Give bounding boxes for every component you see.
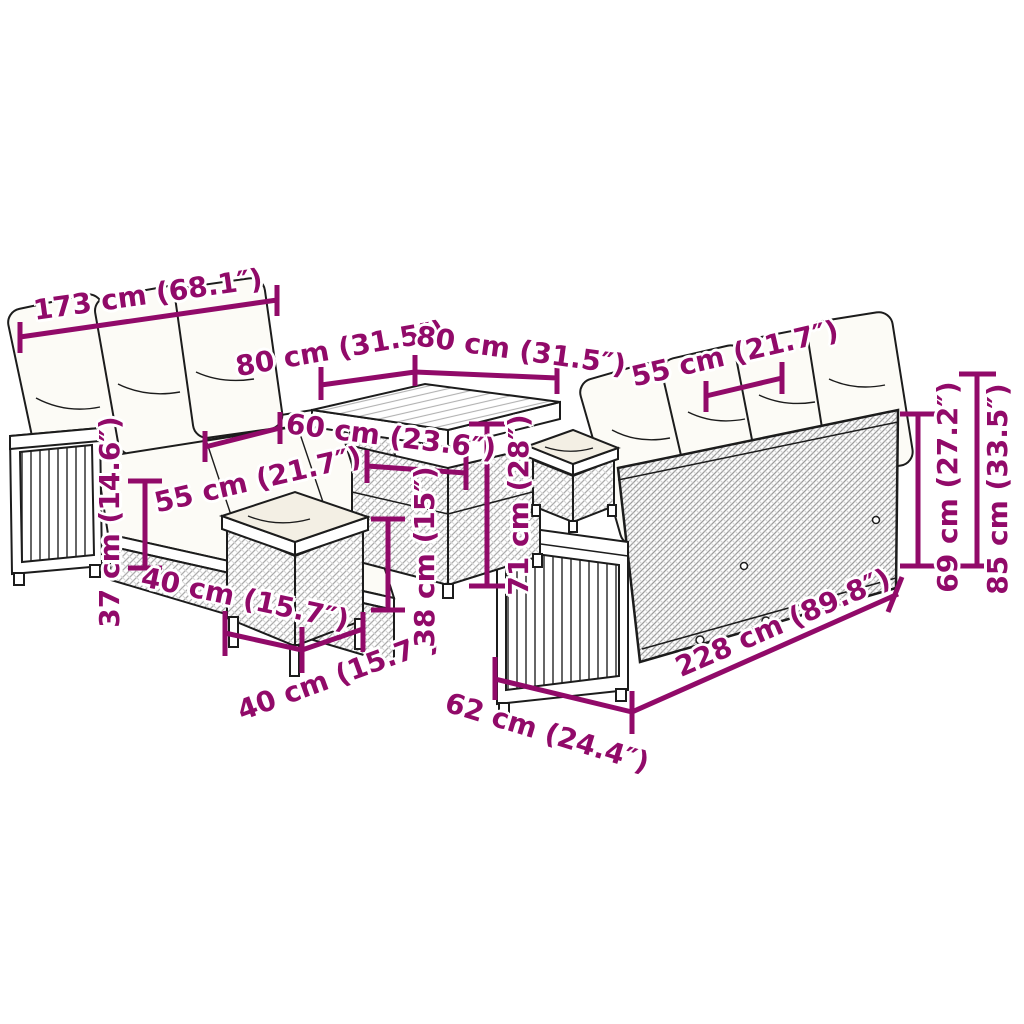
dim-label-table-height: 71 cm (28″) — [505, 414, 533, 595]
stool-side — [528, 430, 618, 532]
dim-label-sofa-small-seat-height: 37 cm (14.6″) — [96, 416, 124, 627]
dim-label-sofa-large-total-height: 85 cm (33.5″) — [984, 383, 1012, 594]
diagram-canvas: 173 cm (68.1″) 80 cm (31.5″) 80 cm (31.5… — [0, 0, 1024, 1024]
dim-label-sofa-large-back-height: 69 cm (27.2″) — [934, 381, 962, 592]
dim-label-stool-height: 38 cm (15″) — [411, 466, 439, 647]
